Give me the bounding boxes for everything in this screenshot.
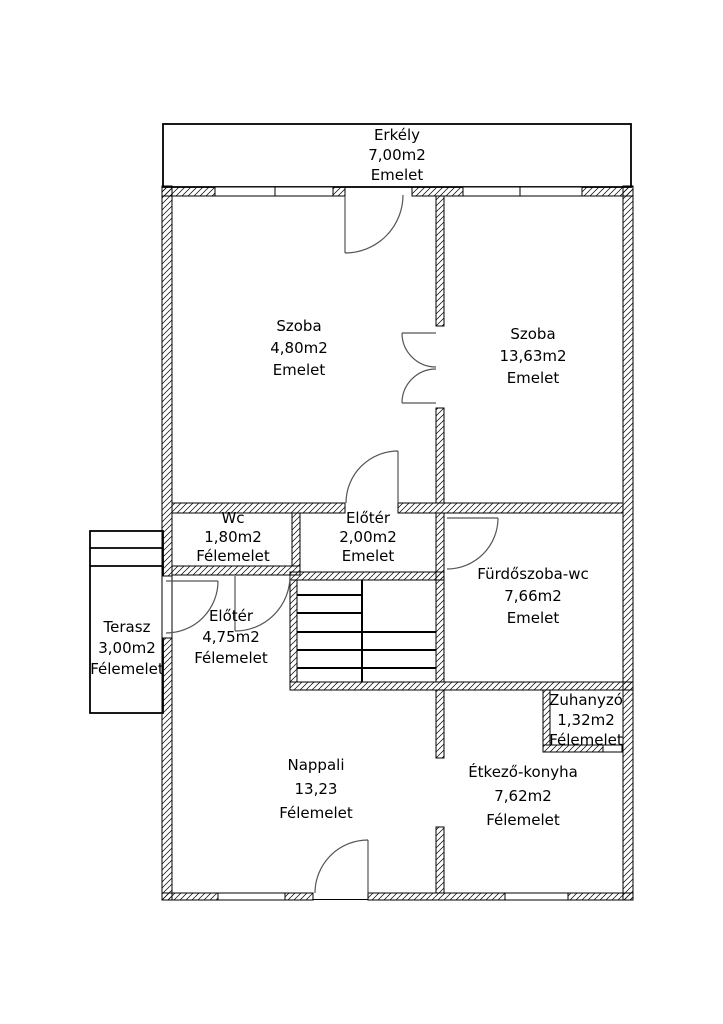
room-level: Félemelet [549,730,623,750]
room-name: Fürdőszoba-wc [477,563,588,585]
top-wall [412,187,463,196]
room-level: Emelet [477,607,588,629]
top-wall [582,187,633,196]
room-level: Félemelet [90,659,164,680]
bottom-wall [568,893,633,900]
room-label-eloter-upper: Előtér 2,00m2 Emelet [339,509,397,566]
room-level: Emelet [368,165,426,185]
room-label-erkely: Erkély 7,00m2 Emelet [368,125,426,185]
room-name: Wc [196,509,270,528]
door-arc-double [402,333,436,403]
room-name: Szoba [499,323,566,345]
room-area: 7,00m2 [368,145,426,165]
room-label-etkezo-konyha: Étkező-konyha 7,62m2 Félemelet [468,760,578,832]
room-name: Előtér [339,509,397,528]
room-level: Emelet [270,359,328,381]
window [218,893,285,900]
room-area: 3,00m2 [90,638,164,659]
room-name: Erkély [368,125,426,145]
room-area: 13,23 [279,777,353,801]
room-area: 1,80m2 [196,528,270,547]
room-area: 1,32m2 [549,710,623,730]
room-label-zuhanyzo: Zuhanyzó 1,32m2 Félemelet [549,690,623,750]
room-label-furdoszoba-wc: Fürdőszoba-wc 7,66m2 Emelet [477,563,588,629]
window [215,187,333,196]
room-area: 4,80m2 [270,337,328,359]
room-name: Terasz [90,617,164,638]
room-area: 13,63m2 [499,345,566,367]
stairs-treads-left [297,595,362,668]
stair-top-wall [290,572,444,580]
room-label-szoba-right: Szoba 13,63m2 Emelet [499,323,566,389]
room-name: Szoba [270,315,328,337]
szoba-divider-wall [436,408,444,503]
top-wall [333,187,345,196]
bottom-wall [285,893,313,900]
room-area: 4,75m2 [194,627,268,648]
room-label-wc: Wc 1,80m2 Félemelet [196,509,270,566]
room-area: 2,00m2 [339,528,397,547]
nappali-divider-wall [436,690,444,758]
room-level: Emelet [499,367,566,389]
top-wall [162,187,215,196]
room-name: Étkező-konyha [468,760,578,784]
room-label-nappali: Nappali 13,23 Félemelet [279,753,353,825]
room-level: Félemelet [194,648,268,669]
door-arc-balcony [345,195,403,253]
room-level: Félemelet [279,801,353,825]
door-arc-szoba [346,451,398,503]
nappali-divider-wall [436,827,444,893]
room-level: Félemelet [196,547,270,566]
room-name: Zuhanyzó [549,690,623,710]
szoba-divider-wall [436,196,444,326]
room-level: Emelet [339,547,397,566]
stairs-treads-right [362,632,436,668]
floorplan-canvas: Erkély 7,00m2 Emelet Szoba 4,80m2 Emelet… [0,0,723,1024]
bottom-wall [368,893,505,900]
stairs [297,580,436,682]
lower-mid-wall [290,682,633,690]
door-arc-nappali [315,840,368,893]
room-name: Nappali [279,753,353,777]
room-label-terasz: Terasz 3,00m2 Félemelet [90,617,164,680]
room-level: Félemelet [468,808,578,832]
room-name: Előtér [194,606,268,627]
left-wall-upper [162,186,172,576]
room-area: 7,62m2 [468,784,578,808]
mid-wall [398,503,623,513]
stair-left-wall [290,580,297,682]
door-arc-bathroom [447,518,498,569]
right-wall [623,186,633,900]
window [505,893,568,900]
wc-bottom-wall [172,566,300,575]
bottom-wall [162,893,218,900]
room-label-eloter-lower: Előtér 4,75m2 Félemelet [194,606,268,669]
window [463,187,582,196]
room-area: 7,66m2 [477,585,588,607]
center-vertical-wall [436,513,444,682]
wc-divider-wall [292,513,300,566]
room-label-szoba-left: Szoba 4,80m2 Emelet [270,315,328,381]
